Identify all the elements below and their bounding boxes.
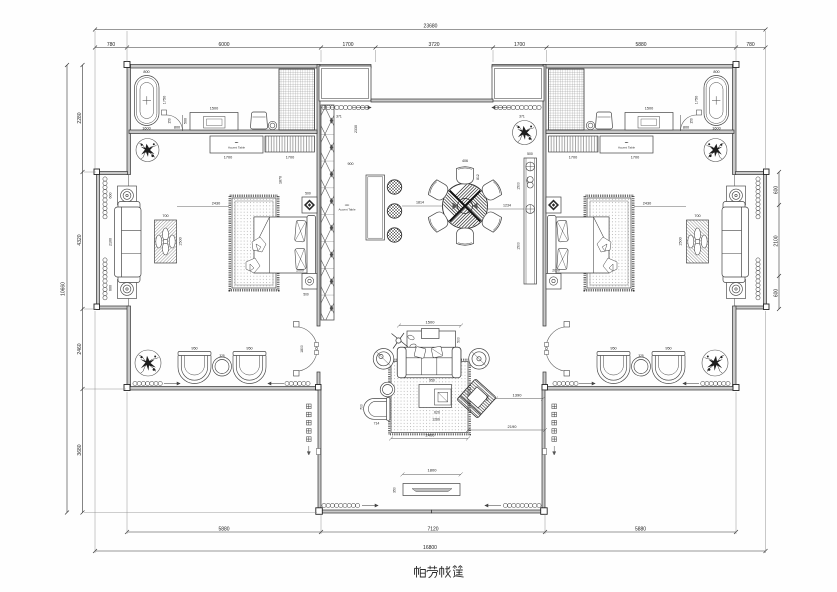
svg-text:500: 500 — [184, 118, 188, 124]
svg-text:700: 700 — [162, 214, 168, 218]
svg-text:2330: 2330 — [354, 125, 358, 133]
svg-text:371: 371 — [519, 115, 525, 119]
svg-text:16800: 16800 — [423, 545, 437, 551]
svg-text:2100: 2100 — [109, 238, 113, 246]
svg-text:2000: 2000 — [296, 269, 304, 273]
svg-text:1500: 1500 — [679, 237, 683, 245]
svg-text:2280: 2280 — [77, 112, 83, 123]
svg-text:5880: 5880 — [635, 526, 646, 532]
svg-text:350: 350 — [393, 487, 397, 493]
svg-text:812: 812 — [476, 174, 480, 180]
svg-text:10660: 10660 — [61, 282, 67, 296]
svg-text:4320: 4320 — [77, 234, 83, 245]
svg-text:▪▪▪: ▪▪▪ — [625, 141, 629, 145]
svg-text:1600: 1600 — [142, 127, 150, 131]
svg-text:2190: 2190 — [508, 424, 518, 429]
svg-text:5880: 5880 — [635, 42, 646, 48]
svg-text:500: 500 — [303, 293, 309, 297]
svg-text:700: 700 — [360, 404, 364, 410]
svg-text:620: 620 — [434, 411, 440, 415]
svg-text:1500: 1500 — [210, 107, 218, 111]
svg-text:1814: 1814 — [416, 201, 424, 205]
svg-text:1390: 1390 — [513, 393, 523, 398]
svg-text:2430: 2430 — [212, 202, 220, 206]
svg-text:800: 800 — [713, 70, 719, 74]
svg-text:Accent Table: Accent Table — [338, 208, 355, 212]
svg-text:2000: 2000 — [552, 269, 560, 273]
svg-text:2430: 2430 — [643, 202, 651, 206]
svg-text:3680: 3680 — [77, 444, 83, 455]
svg-text:700: 700 — [694, 214, 700, 218]
svg-text:1800: 1800 — [300, 345, 304, 353]
svg-text:▪▪▪▪: ▪▪▪▪ — [345, 203, 350, 207]
svg-text:714: 714 — [374, 422, 380, 426]
svg-text:950: 950 — [665, 347, 671, 351]
svg-text:1600: 1600 — [712, 127, 720, 131]
svg-text:5880: 5880 — [218, 526, 229, 532]
svg-text:950: 950 — [429, 379, 435, 383]
svg-text:1700: 1700 — [224, 156, 232, 160]
svg-text:1260: 1260 — [432, 418, 440, 422]
svg-text:950: 950 — [610, 347, 616, 351]
svg-text:1700: 1700 — [569, 156, 577, 160]
svg-text:600: 600 — [109, 285, 113, 291]
svg-text:1700: 1700 — [631, 156, 639, 160]
svg-text:1750: 1750 — [695, 96, 699, 104]
svg-text:650: 650 — [486, 395, 490, 401]
svg-text:1750: 1750 — [163, 96, 167, 104]
svg-text:800: 800 — [143, 70, 149, 74]
svg-text:150: 150 — [690, 118, 694, 124]
svg-text:780: 780 — [746, 42, 755, 48]
svg-text:1870: 1870 — [279, 176, 283, 184]
svg-text:900: 900 — [348, 162, 354, 166]
svg-text:500: 500 — [457, 337, 461, 343]
svg-text:1500: 1500 — [645, 107, 653, 111]
svg-text:950: 950 — [191, 347, 197, 351]
svg-text:1500: 1500 — [517, 182, 521, 190]
svg-text:1234: 1234 — [503, 204, 511, 208]
svg-text:950: 950 — [246, 347, 252, 351]
svg-text:1700: 1700 — [514, 42, 525, 48]
svg-text:600: 600 — [773, 186, 779, 195]
svg-text:23680: 23680 — [424, 24, 438, 30]
svg-text:Accent Table: Accent Table — [618, 146, 635, 150]
svg-text:7120: 7120 — [427, 526, 438, 532]
svg-text:800: 800 — [174, 126, 180, 130]
svg-text:1700: 1700 — [286, 156, 294, 160]
svg-text:325: 325 — [638, 354, 644, 358]
svg-text:800: 800 — [683, 126, 689, 130]
svg-text:371: 371 — [336, 115, 342, 119]
svg-text:2400: 2400 — [426, 433, 436, 438]
svg-text:▪▪▪: ▪▪▪ — [235, 141, 239, 145]
svg-text:600: 600 — [109, 193, 113, 199]
svg-text:2460: 2460 — [77, 343, 83, 354]
svg-text:1700: 1700 — [342, 42, 353, 48]
svg-text:1500: 1500 — [517, 242, 521, 250]
svg-text:3720: 3720 — [428, 42, 439, 48]
svg-text:Accent Table: Accent Table — [228, 146, 245, 150]
svg-text:150: 150 — [168, 118, 172, 124]
svg-text:1500: 1500 — [179, 237, 183, 245]
svg-text:780: 780 — [107, 42, 116, 48]
svg-text:6000: 6000 — [218, 42, 229, 48]
svg-text:2100: 2100 — [773, 235, 779, 246]
svg-text:1800: 1800 — [428, 468, 438, 473]
svg-text:325: 325 — [219, 354, 225, 358]
svg-text:406: 406 — [462, 159, 468, 163]
svg-text:500: 500 — [305, 192, 311, 196]
svg-text:1500: 1500 — [426, 320, 436, 325]
svg-text:500: 500 — [527, 152, 533, 156]
svg-text:600: 600 — [773, 289, 779, 298]
